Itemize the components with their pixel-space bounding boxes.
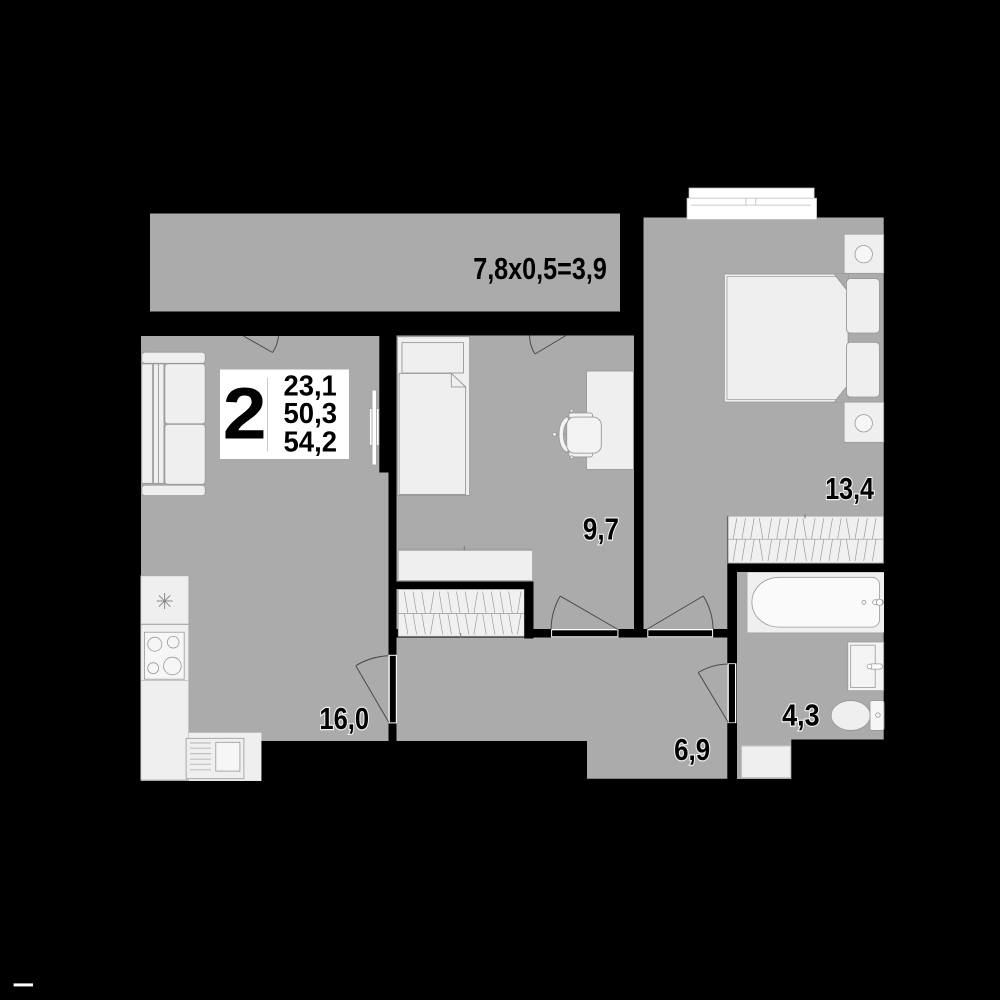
svg-text:13,4: 13,4 xyxy=(825,473,874,506)
svg-text:6,9: 6,9 xyxy=(674,734,710,767)
svg-text:16,0: 16,0 xyxy=(319,701,369,736)
svg-text:7,8x0,5=3,9: 7,8x0,5=3,9 xyxy=(473,252,607,286)
svg-text:4,3: 4,3 xyxy=(782,698,820,733)
svg-text:2: 2 xyxy=(223,373,267,455)
svg-text:54,2: 54,2 xyxy=(284,427,338,459)
svg-text:9,7: 9,7 xyxy=(583,511,619,546)
svg-text:50,3: 50,3 xyxy=(284,398,338,430)
